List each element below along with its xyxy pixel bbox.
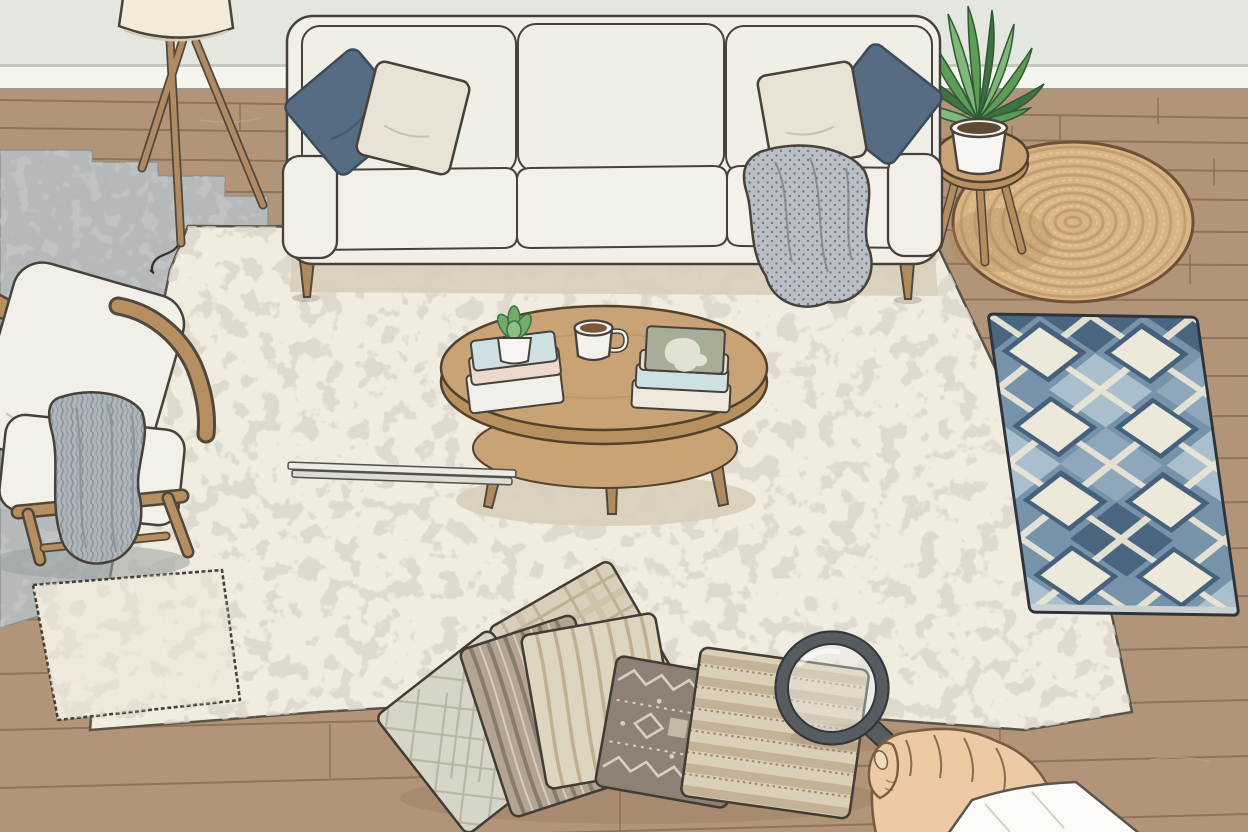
shag-mat	[33, 570, 240, 720]
illustration-living-room-rug-shopping	[0, 0, 1248, 832]
scene-svg	[0, 0, 1248, 832]
shag-mat-texture	[33, 570, 240, 720]
sofa	[282, 16, 945, 307]
mug-coffee	[580, 323, 607, 333]
sofa-armrest-left	[283, 156, 337, 258]
succulent-pot	[498, 338, 531, 364]
armchair-throw	[49, 392, 145, 563]
sofa-armrest-right	[888, 154, 942, 256]
side-table-shadow-on-jute	[948, 208, 1052, 272]
plant-soil	[957, 122, 1001, 134]
lamp-shade	[119, 0, 233, 38]
